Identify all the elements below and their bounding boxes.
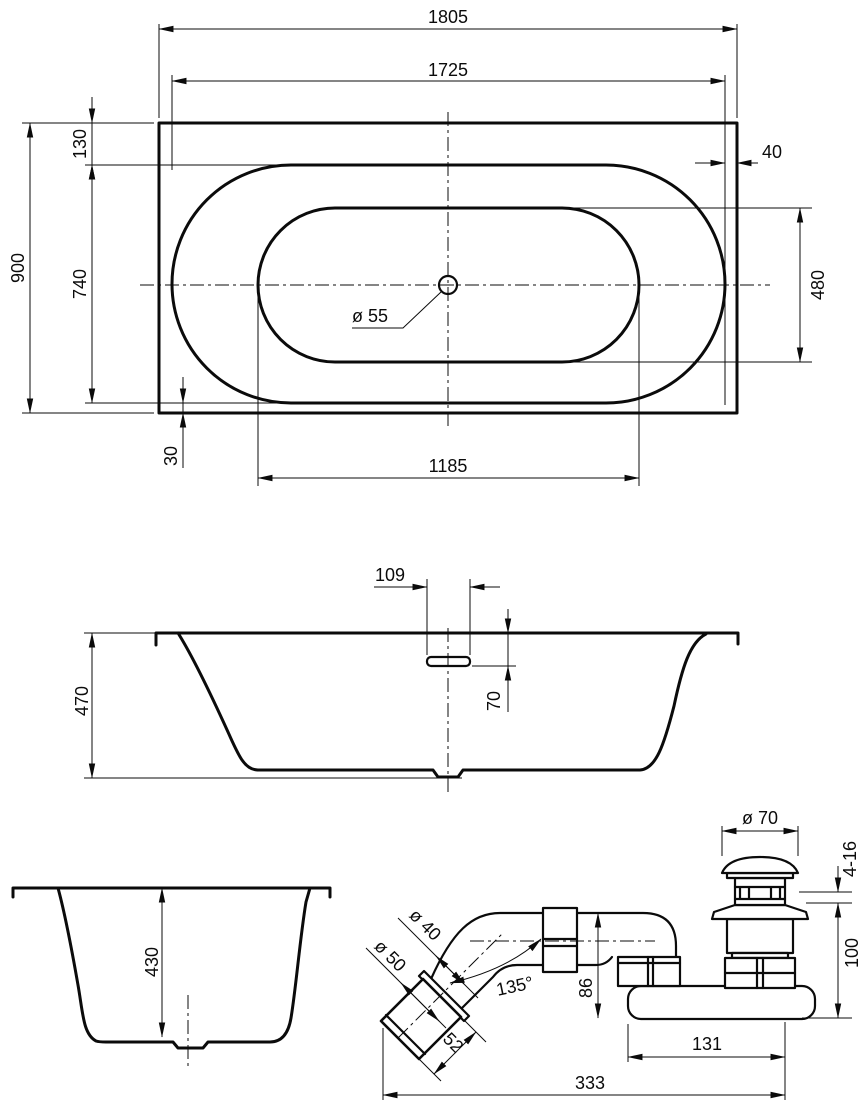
dim-drain-hole-diameter: ø 55 bbox=[352, 306, 388, 326]
arrows-pipe-diameter bbox=[436, 956, 464, 984]
elbow-inner-edge bbox=[577, 957, 612, 965]
plug-body bbox=[727, 919, 793, 953]
side-bottom-right-wall bbox=[258, 634, 706, 777]
dim-overflow-cutout-width: 109 bbox=[375, 565, 405, 585]
waste-body bbox=[628, 986, 815, 1019]
plug-cap-dome bbox=[722, 857, 798, 873]
ext-109 bbox=[427, 579, 470, 655]
dim-overall-depth: 470 bbox=[72, 686, 92, 716]
ext-470 bbox=[84, 633, 462, 778]
plug-slot-section bbox=[735, 878, 785, 905]
ext-adjustment-range bbox=[799, 892, 852, 903]
dim-overall-width: 900 bbox=[8, 253, 28, 283]
elbow-outer-edge bbox=[577, 913, 676, 958]
side-section-view: 109 470 70 bbox=[72, 565, 738, 792]
diagonal-pipe-upper-edge bbox=[431, 913, 543, 979]
ext-900 bbox=[22, 123, 154, 413]
dim-rim-opening-width: 740 bbox=[70, 269, 90, 299]
dim-plug-height: 100 bbox=[842, 938, 862, 968]
dim-socket-diameter: ø 50 bbox=[370, 936, 410, 976]
technical-drawing-page: 1805 1725 900 130 740 30 40 480 1 bbox=[0, 0, 862, 1100]
side-rim-line bbox=[156, 633, 738, 645]
bathtub-technical-drawing: 1805 1725 900 130 740 30 40 480 1 bbox=[0, 0, 862, 1100]
dim-pipe-diameter: ø 40 bbox=[405, 905, 445, 945]
dim-cap-diameter: ø 70 bbox=[742, 808, 778, 828]
dim-basin-floor-length: 1185 bbox=[429, 456, 468, 476]
dim-outlet-angle: 135° bbox=[494, 972, 535, 999]
dim-basin-floor-width: 480 bbox=[808, 270, 828, 300]
dim-rim-top-offset: 130 bbox=[70, 129, 90, 159]
side-left-wall bbox=[178, 633, 258, 770]
dim-rim-edge-width: 40 bbox=[762, 142, 782, 162]
end-section-view: 430 bbox=[13, 888, 330, 1068]
dim-adjustment-range: 4-16 bbox=[840, 841, 860, 877]
dim-body-length: 131 bbox=[692, 1034, 722, 1054]
dim-overall-length-drain: 333 bbox=[575, 1073, 605, 1093]
plug-bell-flange bbox=[712, 905, 808, 919]
dim-inner-depth: 430 bbox=[142, 947, 162, 977]
dim-rim-bottom-offset: 30 bbox=[161, 446, 181, 466]
top-view: 1805 1725 900 130 740 30 40 480 1 bbox=[8, 7, 828, 486]
dim-overflow-top-offset: 70 bbox=[484, 691, 504, 711]
drain-detail: ø 70 4-16 100 86 ø 40 ø 50 135° 52 131 bbox=[366, 808, 862, 1100]
dim-trap-height: 86 bbox=[576, 978, 596, 998]
end-wall-profile bbox=[58, 888, 310, 1048]
dim-overall-length: 1805 bbox=[428, 7, 468, 27]
dim-inner-rim-length: 1725 bbox=[428, 60, 468, 80]
